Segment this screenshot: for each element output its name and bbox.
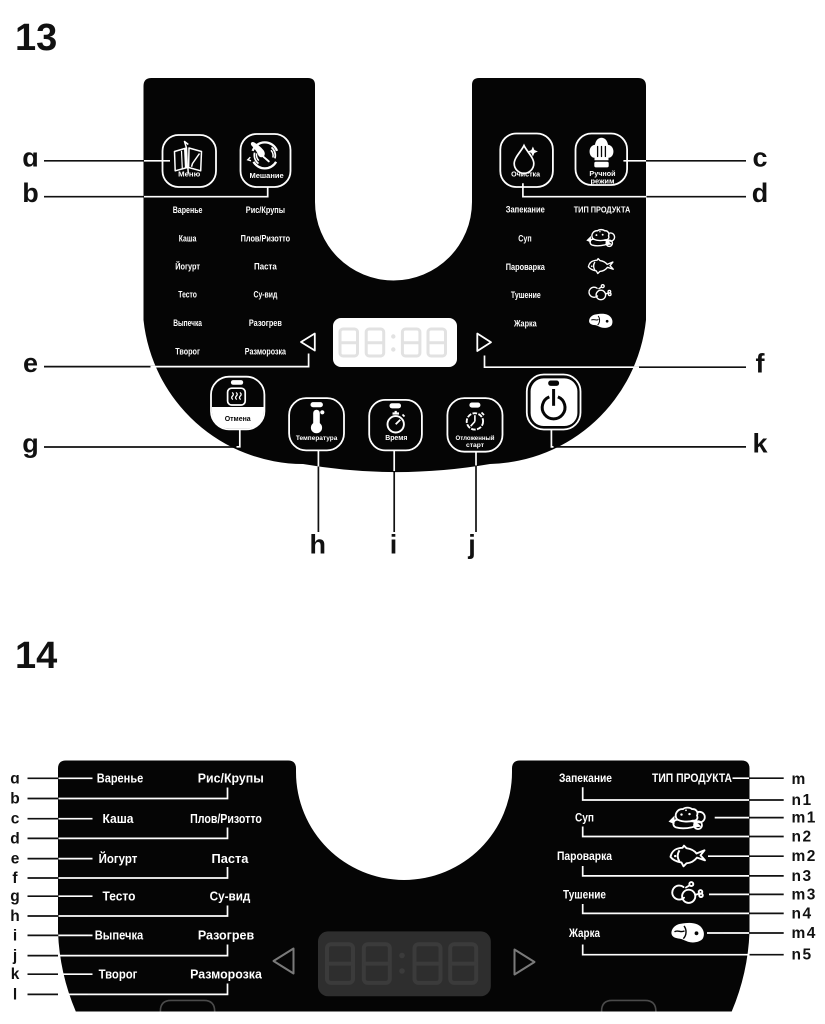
svg-text:13: 13 [15,17,57,59]
svg-text:n1: n1 [792,792,813,809]
svg-text:Йогурт: Йогурт [99,851,138,866]
svg-text:ТИП ПРОДУКТА: ТИП ПРОДУКТА [652,773,732,785]
svg-text:c: c [752,142,767,172]
svg-text:Температура: Температура [296,435,338,442]
svg-text:Рис/Крупы: Рис/Крупы [198,772,264,786]
svg-text:f: f [756,349,766,379]
svg-text:старт: старт [466,442,485,449]
svg-text:Запекание: Запекание [559,773,612,785]
svg-text:f: f [12,870,18,887]
svg-text:Разморозка: Разморозка [245,347,287,357]
svg-text:ɡ: ɡ [10,888,19,905]
svg-text:Тесто: Тесто [178,290,197,300]
svg-text:Рис/Крупы: Рис/Крупы [246,205,285,215]
svg-text:i: i [13,927,17,944]
svg-text:Жарка: Жарка [568,928,600,940]
svg-text:Пароварка: Пароварка [506,262,546,272]
svg-text:l: l [13,986,17,1003]
svg-text:c: c [11,811,20,828]
svg-text:Разогрев: Разогрев [249,318,282,328]
svg-text:Меню: Меню [178,172,200,179]
svg-text:режим: режим [591,178,615,185]
svg-text:m2: m2 [792,848,817,865]
svg-text:Варенье: Варенье [173,205,203,215]
svg-text:Су-вид: Су-вид [254,290,278,300]
svg-text:Творог: Творог [175,347,200,357]
svg-text:b: b [10,791,19,808]
svg-text:Каша: Каша [103,812,135,826]
svg-text:ɡ: ɡ [22,429,39,459]
svg-text:Паста: Паста [254,262,278,272]
svg-text:Пароварка: Пароварка [557,851,613,863]
svg-text:Тушение: Тушение [563,889,606,901]
svg-text:14: 14 [15,635,57,677]
svg-text:Су-вид: Су-вид [210,890,251,904]
svg-text:h: h [309,529,326,559]
svg-text:Время: Время [385,435,407,442]
svg-text:e: e [23,348,38,378]
svg-text:e: e [11,851,20,868]
svg-text:Плов/Ризотто: Плов/Ризотто [241,234,291,244]
svg-text:Разогрев: Разогрев [198,929,255,943]
svg-text:j: j [467,529,476,559]
svg-text:Паста: Паста [212,852,250,866]
svg-text:Тушение: Тушение [511,290,541,300]
svg-text:Йогурт: Йогурт [175,261,200,272]
svg-text:Творог: Творог [99,967,138,981]
svg-text:Запекание: Запекание [506,205,545,215]
svg-text:Отложенный: Отложенный [456,434,495,442]
svg-text:Мешание: Мешание [250,173,284,180]
svg-text:m: m [792,771,807,788]
svg-text:k: k [752,428,768,458]
svg-text:Жарка: Жарка [513,318,537,328]
svg-text:m1: m1 [792,810,817,827]
svg-text:n2: n2 [792,829,813,846]
svg-text:b: b [22,178,39,208]
svg-text:d: d [10,830,19,847]
svg-text:Плов/Ризотто: Плов/Ризотто [190,812,262,826]
svg-text:Разморозка: Разморозка [190,967,263,981]
svg-text:m3: m3 [792,886,817,903]
svg-text:n4: n4 [792,905,813,922]
svg-text:h: h [10,908,19,925]
svg-text:Каша: Каша [179,234,197,244]
svg-text:n5: n5 [792,947,813,964]
svg-text:n3: n3 [792,868,813,885]
svg-text:Варенье: Варенье [97,772,144,786]
svg-text:d: d [752,178,769,208]
svg-text:Отмена: Отмена [225,414,252,423]
svg-text:m4: m4 [792,925,817,942]
svg-text:Суп: Суп [575,813,594,825]
svg-text:i: i [390,529,398,559]
svg-text:k: k [11,966,20,983]
svg-text:Ручной: Ручной [589,170,615,178]
svg-text:j: j [12,948,17,965]
svg-text:Выпечка: Выпечка [95,929,144,943]
svg-text:Тесто: Тесто [103,890,136,904]
svg-text:ТИП ПРОДУКТА: ТИП ПРОДУКТА [574,205,631,215]
svg-text:Выпечка: Выпечка [173,318,203,328]
svg-text:Суп: Суп [518,234,531,244]
svg-text:ɑ: ɑ [10,770,19,787]
svg-text:ɑ: ɑ [22,142,39,172]
